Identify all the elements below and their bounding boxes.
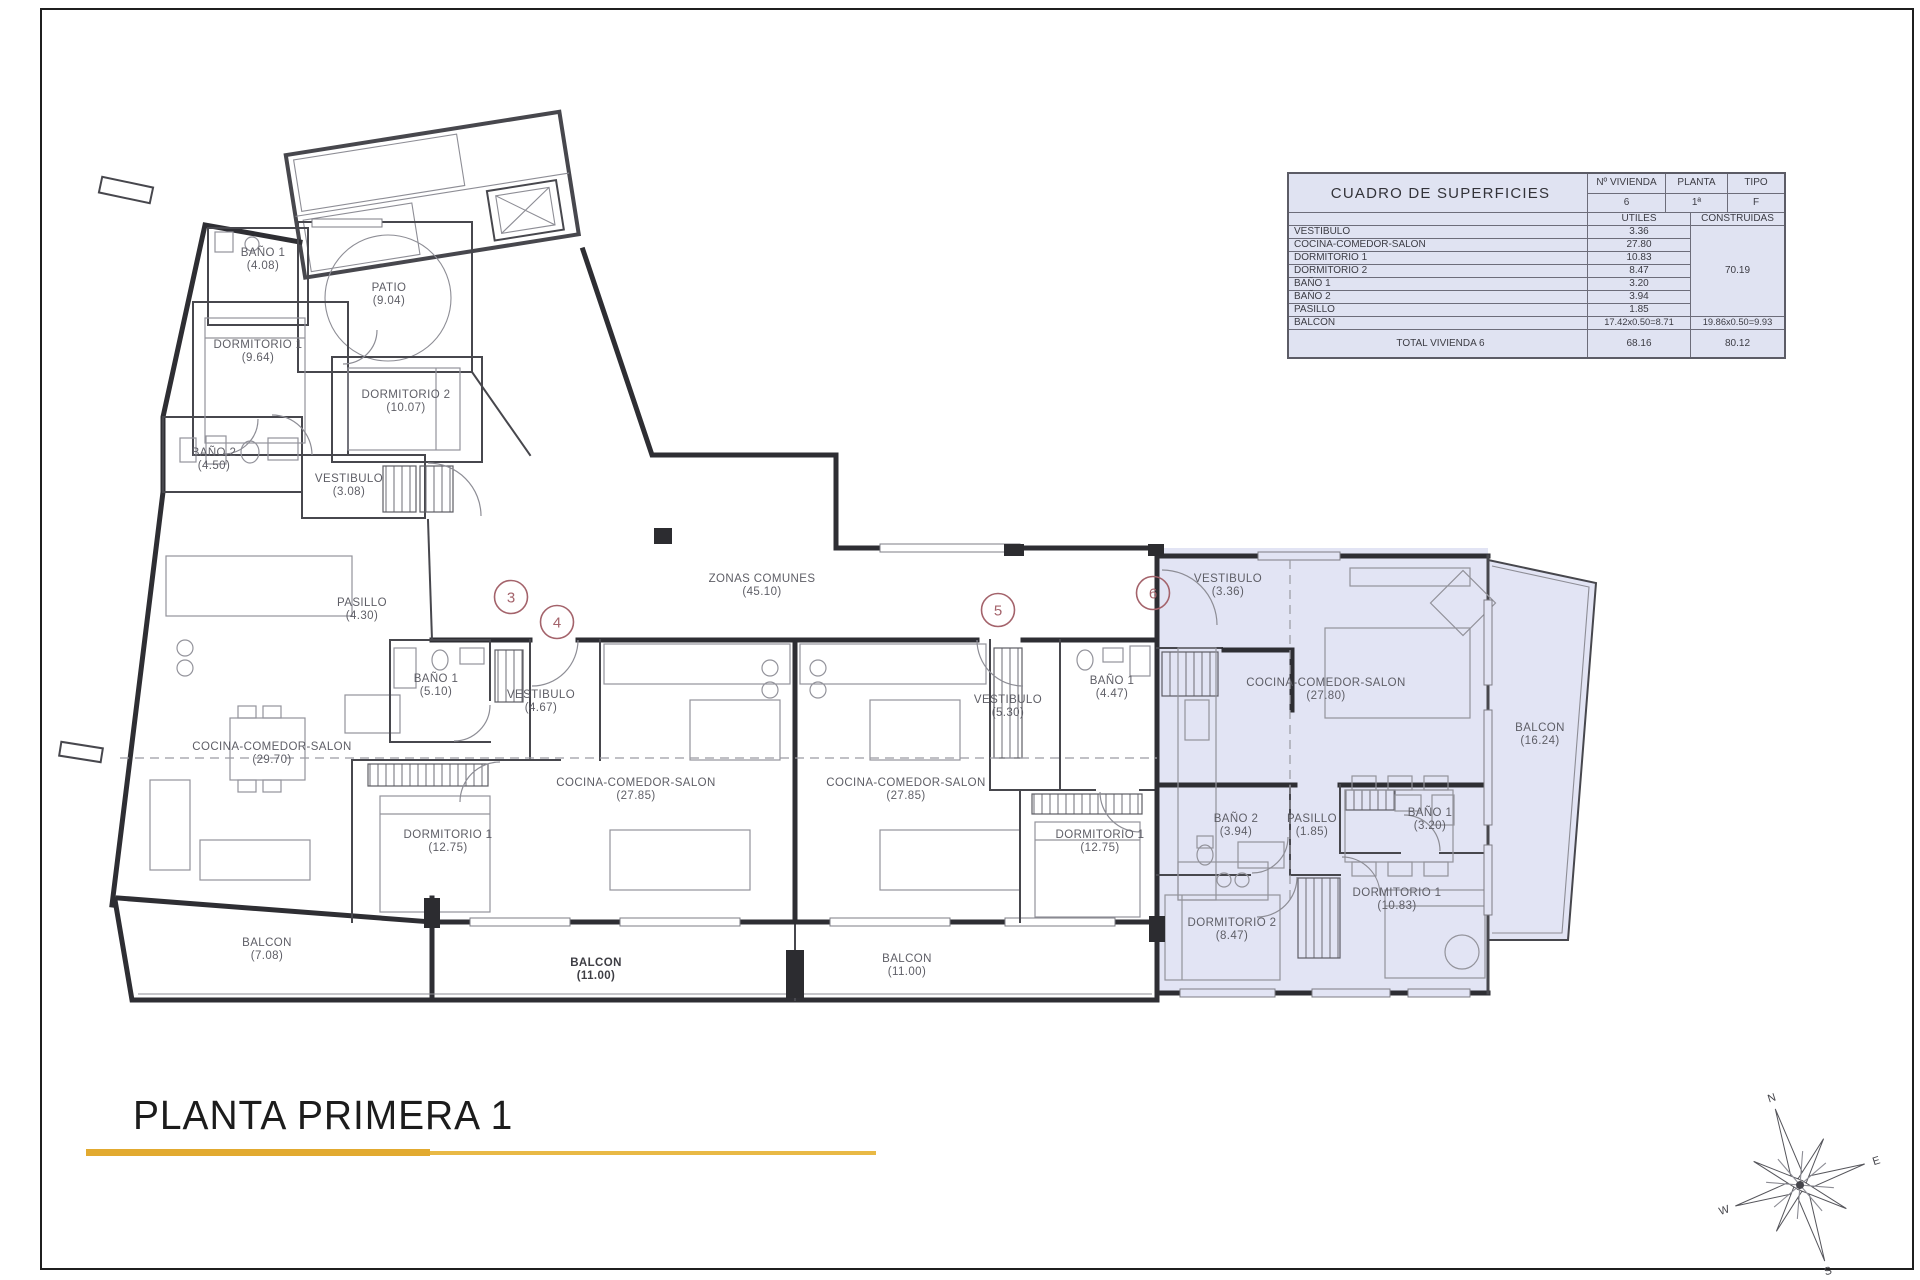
- compass-s: S: [1823, 1265, 1834, 1279]
- table-row: DORMITORIO 110.83: [1289, 252, 1691, 265]
- room-label: BAÑO 1(5.10): [414, 672, 459, 698]
- room-label: COCINA-COMEDOR-SALON(29.70): [192, 741, 351, 766]
- construidas-merged-value: 70.19: [1691, 226, 1784, 317]
- room-label: ZONAS COMUNES(45.10): [709, 573, 816, 598]
- unit-markers: 3456: [495, 577, 1170, 639]
- col-vivienda: Nº VIVIENDA: [1588, 174, 1666, 194]
- tipo-value: F: [1728, 194, 1784, 214]
- exterior-stub: [99, 177, 153, 203]
- unit-number: 5: [994, 603, 1002, 620]
- room-label: BALCON(11.00): [570, 957, 622, 982]
- room-label: BAÑO 2(4.50): [192, 446, 237, 472]
- table-subheader: UTILES CONSTRUIDAS: [1289, 213, 1784, 226]
- table-header: CUADRO DE SUPERFICIES Nº VIVIENDA PLANTA…: [1289, 174, 1784, 213]
- room-label: COCINA-COMEDOR-SALON(27.85): [556, 777, 715, 802]
- col-tipo: TIPO: [1728, 174, 1784, 194]
- col-planta: PLANTA: [1666, 174, 1728, 194]
- sheet-title: PLANTA PRIMERA 1: [133, 1092, 513, 1139]
- col-utiles: UTILES: [1588, 213, 1691, 226]
- table-row: BAÑO 13.20: [1289, 278, 1691, 291]
- total-utiles: 68.16: [1588, 330, 1691, 357]
- unit-number: 4: [553, 615, 561, 632]
- table-body: VESTIBULO3.36 COCINA-COMEDOR-SALON27.80 …: [1289, 226, 1784, 317]
- table-row: DORMITORIO 28.47: [1289, 265, 1691, 278]
- exterior-wall-top: [583, 250, 1157, 548]
- room-label: BAÑO 1(4.08): [241, 246, 286, 272]
- balconies: [115, 898, 1157, 1000]
- room-label: PATIO(9.04): [372, 282, 407, 307]
- surface-table: CUADRO DE SUPERFICIES Nº VIVIENDA PLANTA…: [1287, 172, 1786, 359]
- room-label: DORMITORIO 1(9.64): [214, 339, 303, 364]
- room-label: DORMITORIO 1(12.75): [1056, 829, 1145, 854]
- room-label: DORMITORIO 1(12.75): [404, 829, 493, 854]
- table-row-total: TOTAL VIVIENDA 6 68.16 80.12: [1289, 330, 1784, 357]
- room-label: VESTIBULO(5.30): [974, 694, 1042, 719]
- room-label: DORMITORIO 2(10.07): [362, 389, 451, 414]
- room-label: PASILLO(4.30): [337, 597, 387, 622]
- exterior-wall-left: [112, 225, 300, 905]
- table-row-balcon: BALCON 17.42x0.50=8.71 19.86x0.50=9.93: [1289, 317, 1784, 330]
- room-label: BAÑO 1(4.47): [1090, 674, 1135, 700]
- apartment3-4-interior: [150, 556, 790, 922]
- total-construidas: 80.12: [1691, 330, 1784, 357]
- table-row: VESTIBULO3.36: [1289, 226, 1691, 239]
- title-underline-thick: [86, 1149, 430, 1156]
- room-label: VESTIBULO(3.08): [315, 473, 383, 498]
- total-label: TOTAL VIVIENDA 6: [1289, 330, 1588, 357]
- room-label: COCINA-COMEDOR-SALON(27.85): [826, 777, 985, 802]
- room-label: BALCON(7.08): [242, 937, 292, 962]
- compass-rose: N E S W: [1689, 1067, 1910, 1280]
- exterior-stub: [59, 742, 103, 762]
- table-title: CUADRO DE SUPERFICIES: [1289, 174, 1588, 213]
- compass-e: E: [1871, 1154, 1882, 1168]
- vivienda-number: 6: [1588, 194, 1666, 214]
- blank-cell: [1289, 213, 1588, 226]
- table-row: PASILLO1.85: [1289, 304, 1691, 317]
- planta-value: 1ª: [1666, 194, 1728, 214]
- table-row: BAÑO 23.94: [1289, 291, 1691, 304]
- title-underline-thin: [430, 1151, 876, 1155]
- compass-w: W: [1717, 1203, 1731, 1218]
- room-label: BALCON(16.24): [1515, 722, 1565, 747]
- unit-number: 3: [507, 590, 515, 607]
- unit-number: 6: [1149, 586, 1157, 603]
- col-construidas: CONSTRUIDAS: [1691, 213, 1784, 226]
- room-label: BALCON(11.00): [882, 953, 932, 978]
- table-row: COCINA-COMEDOR-SALON27.80: [1289, 239, 1691, 252]
- compass-n: N: [1766, 1092, 1777, 1106]
